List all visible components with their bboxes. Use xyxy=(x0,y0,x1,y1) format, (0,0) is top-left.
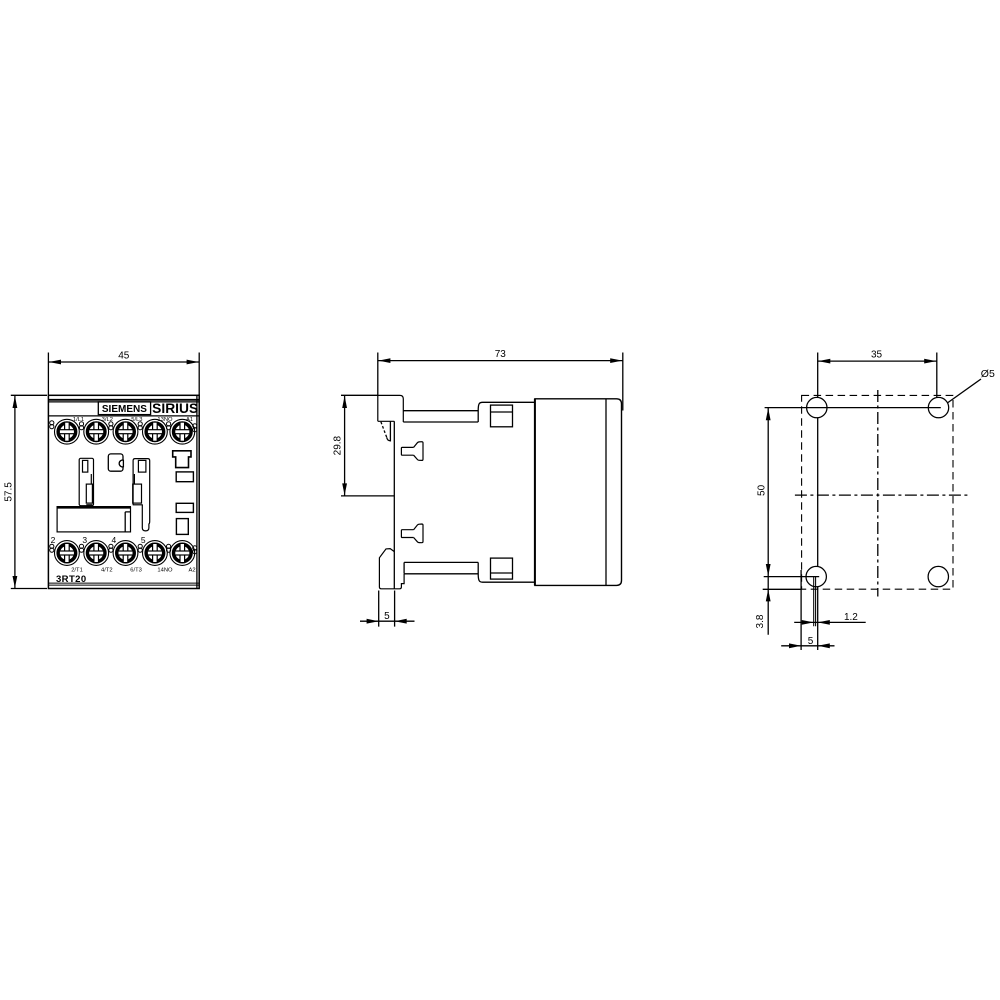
svg-text:5: 5 xyxy=(141,535,146,545)
svg-text:73: 73 xyxy=(495,349,507,360)
svg-text:2/T1: 2/T1 xyxy=(71,568,83,574)
svg-text:A2: A2 xyxy=(188,568,195,574)
svg-text:SIRIUS: SIRIUS xyxy=(152,401,198,416)
svg-text:2: 2 xyxy=(51,535,56,545)
svg-text:45: 45 xyxy=(118,351,130,362)
svg-text:5: 5 xyxy=(384,611,390,622)
svg-text:57.5: 57.5 xyxy=(3,482,14,502)
svg-text:14NO: 14NO xyxy=(157,568,173,574)
svg-text:3: 3 xyxy=(82,535,87,545)
svg-text:50: 50 xyxy=(756,484,767,496)
svg-text:SIEMENS: SIEMENS xyxy=(102,403,147,415)
svg-text:4/T2: 4/T2 xyxy=(101,568,113,574)
svg-text:5: 5 xyxy=(808,636,814,647)
svg-text:35: 35 xyxy=(871,350,883,361)
svg-text:1.2: 1.2 xyxy=(844,612,858,623)
svg-text:6/T3: 6/T3 xyxy=(130,568,142,574)
svg-text:3.8: 3.8 xyxy=(755,614,766,628)
svg-text:Ø5: Ø5 xyxy=(981,368,995,380)
svg-text:4: 4 xyxy=(112,535,117,545)
svg-text:29.8: 29.8 xyxy=(333,435,344,455)
